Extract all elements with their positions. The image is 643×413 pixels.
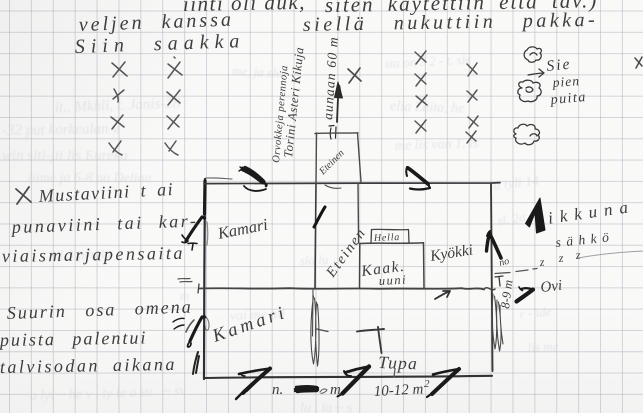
svg-text:sta on S 2 - t. sle: sta on S 2 - t. sle xyxy=(384,51,471,71)
svg-text:Hella: Hella xyxy=(373,232,401,244)
svg-text:Ovi: Ovi xyxy=(540,278,563,296)
svg-text:lis me: lis me xyxy=(527,338,559,355)
svg-text:ja tyli 14: ja tyli 14 xyxy=(487,174,540,194)
svg-text:puita: puita xyxy=(549,90,587,108)
svg-text:Tupa: Tupa xyxy=(378,352,419,373)
svg-text:8-9 m: 8-9 m xyxy=(498,279,515,309)
svg-text:a lyi ~ he v . ty le a su . ~: a lyi ~ he v . ty le a su . ~ sv xyxy=(30,384,187,404)
svg-text:lu . ia ~ s: lu . ia ~ s xyxy=(300,401,353,413)
svg-text:siellä nukuttiin pakka-: siellä nukuttiin pakka- xyxy=(303,9,599,36)
svg-text:Sie: Sie xyxy=(546,55,573,75)
svg-text:Eteinen: Eteinen xyxy=(317,148,347,178)
svg-text:z: z xyxy=(538,255,545,269)
svg-text:pien: pien xyxy=(551,73,580,90)
svg-text:me lis van 1. ls: me lis van 1. ls xyxy=(395,136,480,154)
svg-text:puista palentui: puista palentui xyxy=(0,327,148,350)
svg-text:elia Laita, he: elia Laita, he xyxy=(390,99,465,117)
svg-text:n.: n. xyxy=(272,382,283,398)
svg-text:z: z xyxy=(557,251,564,265)
svg-text:punaviini tai kar-: punaviini tai kar- xyxy=(9,210,198,237)
svg-text:10-12 m: 10-12 m xyxy=(373,381,424,400)
svg-text:talvisodan aikana: talvisodan aikana xyxy=(0,354,177,377)
svg-text:2: 2 xyxy=(424,378,430,390)
svg-text:Siin saakka: Siin saakka xyxy=(74,30,245,58)
svg-text:m: m xyxy=(330,382,341,398)
svg-text:ikkuna: ikkuna xyxy=(547,197,636,228)
svg-text:sl. 2a: sl. 2a xyxy=(496,209,526,228)
svg-text:uuni: uuni xyxy=(378,273,407,288)
svg-text:-32 put korkealan v: -32 put korkealan v xyxy=(2,121,120,139)
svg-text:z: z xyxy=(574,248,581,262)
svg-text:r - ide: r - ide xyxy=(519,304,552,321)
svg-text:sia lu: sia lu xyxy=(300,252,330,268)
svg-text:Suurin osa omena: Suurin osa omena xyxy=(6,297,193,323)
svg-text:viaismarjapensaita: viaismarjapensaita xyxy=(2,243,185,266)
svg-text:no: no xyxy=(498,256,511,269)
svg-text:win siti-jii lis Eureka: win siti-jii lis Eureka xyxy=(2,148,128,164)
svg-text:Kyökki: Kyökki xyxy=(428,241,474,265)
svg-text:Kamari: Kamari xyxy=(215,215,270,244)
svg-text:me, ja sle: me, ja sle xyxy=(232,63,282,81)
svg-text:sähkö: sähkö xyxy=(555,229,615,250)
